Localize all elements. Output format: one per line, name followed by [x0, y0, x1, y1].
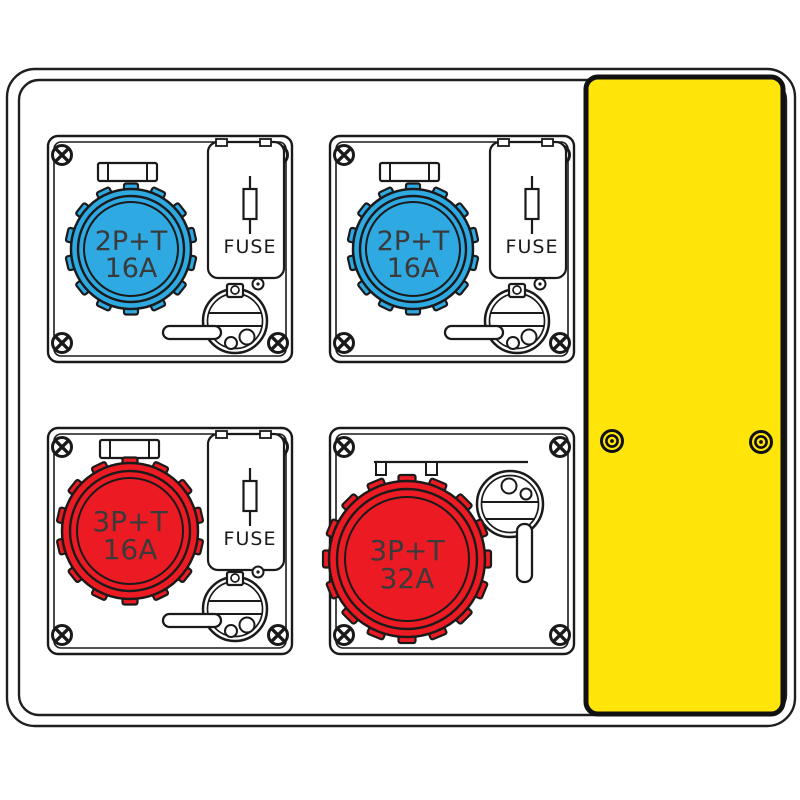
bracket-tab	[426, 462, 437, 475]
socket-rating-label: 16A	[105, 253, 158, 284]
cee-socket-red-16a-icon: 3P+T 16A	[57, 458, 204, 605]
bracket-tab	[376, 462, 386, 475]
corner-screw-icon	[269, 626, 288, 645]
cee-socket-blue-16a-icon: 2P+T 16A	[66, 184, 197, 315]
side-panel	[586, 77, 783, 714]
corner-screw-icon	[335, 334, 354, 353]
corner-screw-icon	[551, 438, 570, 457]
corner-screw-icon	[53, 334, 72, 353]
interlock-lever	[517, 524, 532, 582]
corner-screw-icon	[335, 146, 354, 165]
corner-screw-icon	[53, 438, 72, 457]
corner-screw-icon	[551, 334, 570, 353]
cee-socket-red-32a-icon: 3P+T 32A	[323, 475, 491, 643]
module-bottom-left: FUSE 3P+T 16A	[48, 428, 292, 654]
distribution-board-drawing: FUSE 2P+T 16A FUSE 2P+T 16A	[0, 0, 800, 800]
drawing-canvas: FUSE 2P+T 16A FUSE 2P+T 16A	[0, 0, 800, 800]
socket-rating-label: 16A	[387, 253, 440, 284]
module-top-left: FUSE 2P+T 16A	[48, 136, 292, 362]
module-bottom-right: 3P+T 32A	[323, 428, 574, 654]
socket-hinge-bracket	[98, 163, 157, 181]
side-panel-cover	[586, 77, 783, 714]
fuse-label: FUSE	[506, 236, 559, 258]
socket-hinge-bracket	[100, 440, 159, 458]
corner-screw-icon	[53, 626, 72, 645]
fuse-label: FUSE	[224, 236, 277, 258]
corner-screw-icon	[53, 146, 72, 165]
socket-rating-label: 16A	[103, 533, 158, 566]
fuse-label: FUSE	[224, 528, 277, 550]
interlock-hole	[502, 479, 517, 494]
interlock-hole	[521, 489, 532, 500]
socket-hinge-bracket	[380, 163, 439, 181]
corner-screw-icon	[335, 626, 354, 645]
corner-screw-icon	[335, 438, 354, 457]
corner-screw-icon	[269, 334, 288, 353]
cee-socket-blue-16a-icon: 2P+T 16A	[348, 184, 479, 315]
socket-rating-label: 32A	[380, 562, 435, 595]
corner-screw-icon	[551, 626, 570, 645]
module-top-right: FUSE 2P+T 16A	[330, 136, 574, 362]
